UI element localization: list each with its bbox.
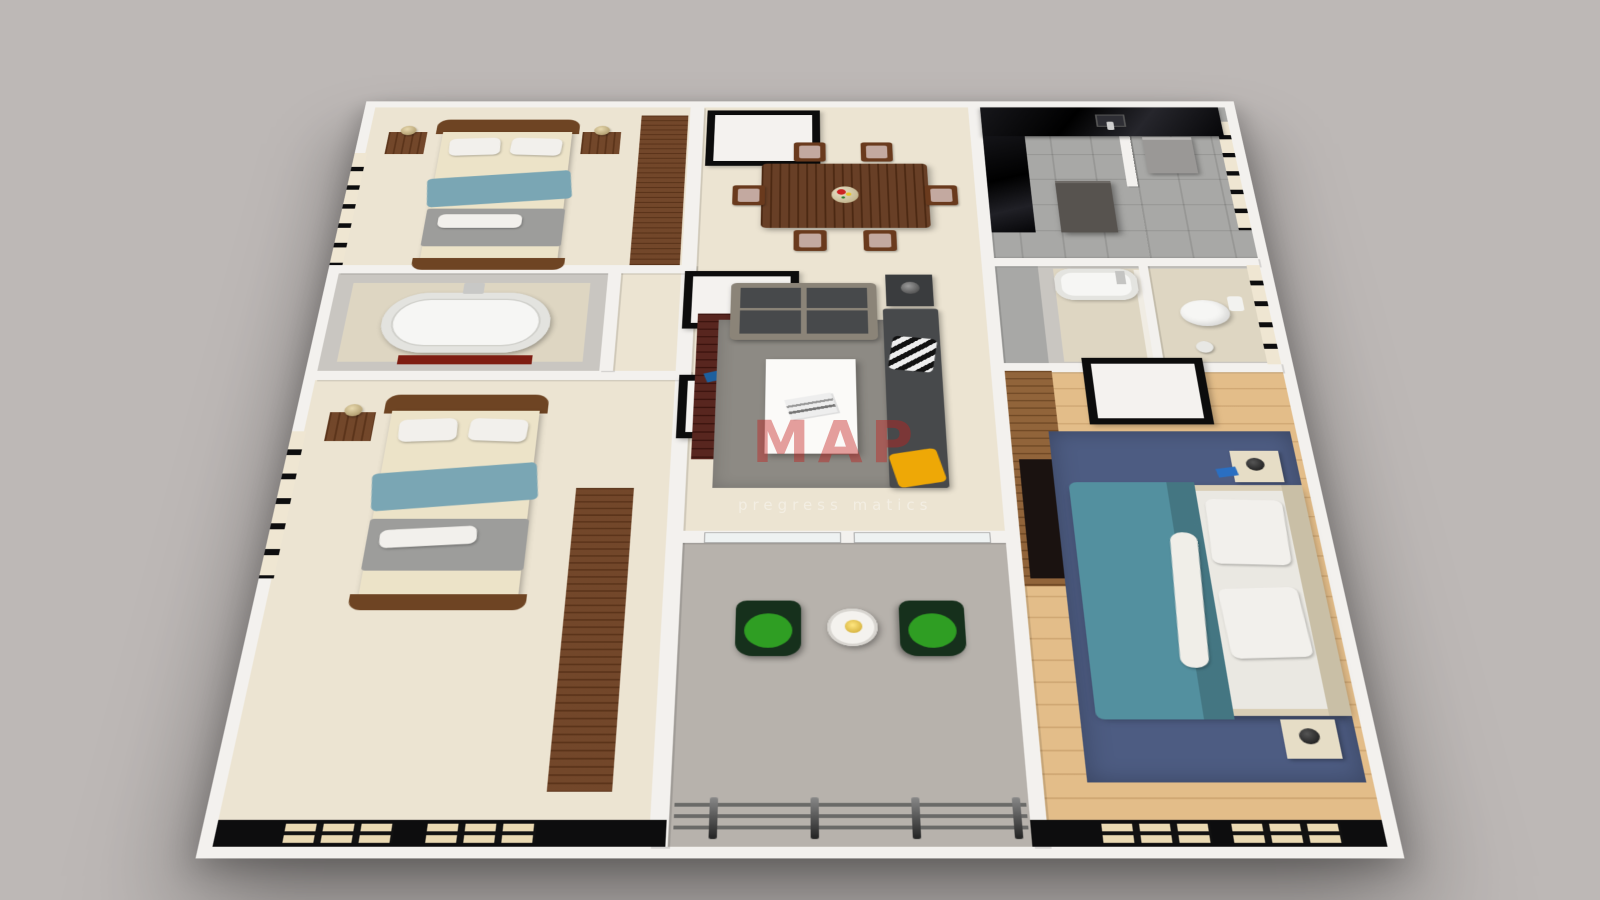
floor-plan-3d-render xyxy=(196,101,1405,858)
watermark-subtitle: pregress matics xyxy=(738,496,933,514)
wall-bathroom1-bedroom2 xyxy=(315,371,691,380)
dining-chair xyxy=(732,185,765,205)
railing-post xyxy=(709,797,719,839)
balcony-green-armchair xyxy=(898,601,967,657)
bedroom2-window-grid xyxy=(282,824,394,843)
kitchen-faucet xyxy=(1106,122,1114,130)
bathtub-faucet xyxy=(463,283,485,294)
dining-chair xyxy=(925,185,959,205)
pillow xyxy=(448,137,500,155)
bathroom1-oval-bathtub xyxy=(376,293,554,353)
nightstand xyxy=(324,412,376,441)
dining-chair xyxy=(863,230,897,251)
railing-post xyxy=(811,797,819,839)
bedroom1-white-towel xyxy=(437,214,523,228)
master-window-grid xyxy=(1231,824,1344,843)
master-south-black-wall xyxy=(1030,820,1387,847)
patterned-pillow xyxy=(888,336,938,373)
washing-machine xyxy=(1142,137,1198,173)
kitchen-island xyxy=(1055,181,1118,232)
balcony-green-armchair xyxy=(735,601,801,657)
balcony-table-lamp xyxy=(845,620,863,633)
nightstand xyxy=(384,132,427,154)
pillow xyxy=(1205,499,1292,566)
bathroom2-shower-fixture xyxy=(1115,271,1126,284)
nightstand xyxy=(580,132,621,154)
fruit-bowl xyxy=(831,186,858,203)
balcony-sliding-glass-door xyxy=(854,532,992,543)
master-window-grid xyxy=(1101,824,1213,843)
watermark-logo: MAP xyxy=(752,408,921,476)
balcony-sliding-glass-door xyxy=(704,532,841,543)
door-panel-bathroom2 xyxy=(1081,358,1214,425)
bathroom1-red-mat xyxy=(397,355,533,364)
dining-chair xyxy=(861,142,893,161)
dining-chair xyxy=(794,142,826,161)
pillow xyxy=(509,137,563,155)
bathroom2-bathtub xyxy=(1053,269,1140,300)
bathroom2-vase xyxy=(1227,296,1245,311)
bedroom2-south-black-wall xyxy=(212,820,666,847)
pillow xyxy=(398,418,459,442)
sofa-cushions xyxy=(739,288,868,334)
pillow xyxy=(467,418,530,442)
bedroom2-window-grid xyxy=(425,824,536,843)
side-table-lamp xyxy=(901,282,920,294)
wall-kitchen-bathroom2 xyxy=(994,258,1260,266)
dining-chair xyxy=(794,230,827,251)
balcony-railing-cables xyxy=(674,803,1026,807)
bedroom2-bed-footboard xyxy=(347,594,527,610)
balcony-floor xyxy=(665,541,1034,846)
scene-background: MAP pregress matics xyxy=(0,0,1600,900)
bedroom1-bed-footboard xyxy=(411,258,566,270)
two-seat-sofa xyxy=(730,283,879,340)
